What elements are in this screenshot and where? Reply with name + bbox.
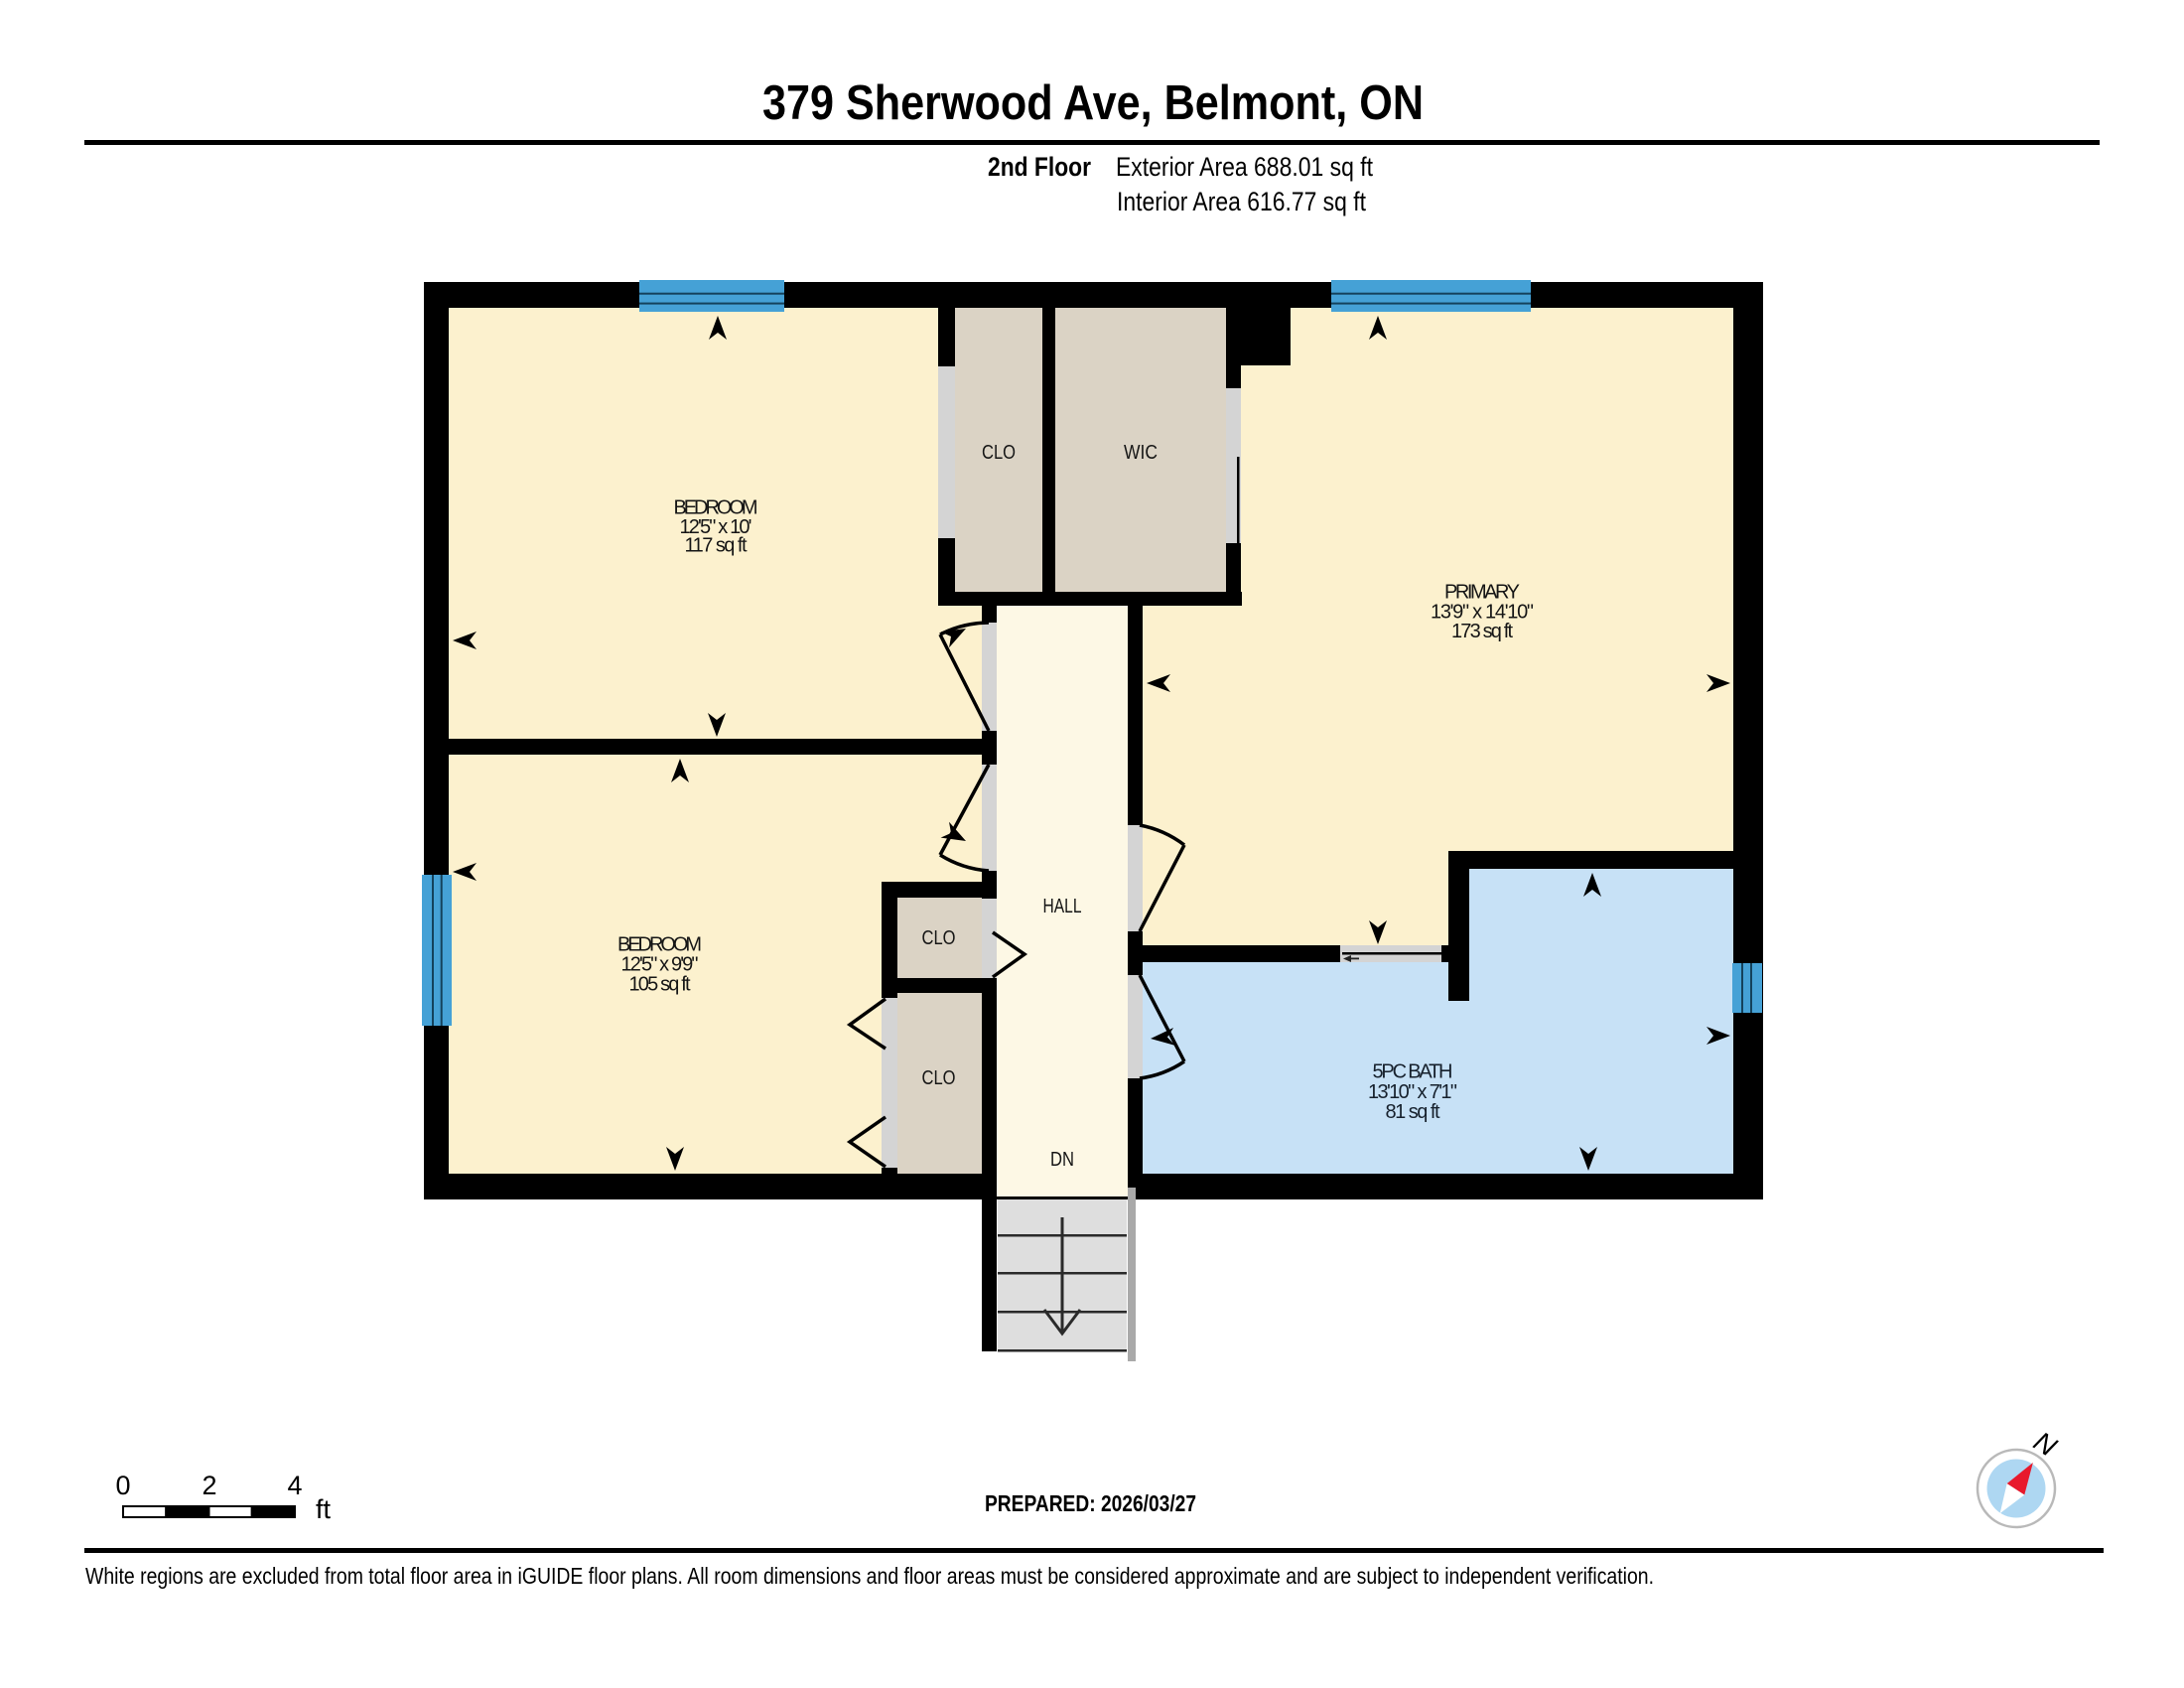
svg-text:117 sq ft: 117 sq ft xyxy=(685,535,748,557)
svg-text:DN: DN xyxy=(1050,1149,1074,1171)
svg-text:Exterior Area 688.01 sq ft: Exterior Area 688.01 sq ft xyxy=(1116,152,1373,182)
svg-text:PREPARED: 2026/03/27: PREPARED: 2026/03/27 xyxy=(985,1490,1196,1516)
svg-text:PRIMARY: PRIMARY xyxy=(1444,582,1520,604)
svg-text:2nd Floor: 2nd Floor xyxy=(988,152,1091,182)
svg-text:12'5" x 9'9": 12'5" x 9'9" xyxy=(621,954,699,976)
svg-text:WIC: WIC xyxy=(1124,442,1158,464)
svg-text:173 sq ft: 173 sq ft xyxy=(1451,621,1513,642)
svg-text:13'10" x 7'1": 13'10" x 7'1" xyxy=(1368,1081,1457,1103)
svg-text:379 Sherwood Ave, Belmont, ON: 379 Sherwood Ave, Belmont, ON xyxy=(762,76,1424,130)
svg-text:0: 0 xyxy=(115,1471,130,1500)
svg-text:CLO: CLO xyxy=(922,1067,956,1089)
svg-text:White regions are excluded fro: White regions are excluded from total fl… xyxy=(85,1563,1654,1589)
svg-text:CLO: CLO xyxy=(922,927,956,949)
svg-text:ft: ft xyxy=(316,1494,332,1524)
svg-text:BEDROOM: BEDROOM xyxy=(617,934,702,956)
svg-text:5PC BATH: 5PC BATH xyxy=(1373,1061,1453,1083)
svg-text:105 sq ft: 105 sq ft xyxy=(629,974,691,996)
svg-text:2: 2 xyxy=(202,1471,216,1500)
svg-text:Interior Area 616.77 sq ft: Interior Area 616.77 sq ft xyxy=(1117,187,1366,216)
svg-text:HALL: HALL xyxy=(1043,896,1082,917)
svg-text:CLO: CLO xyxy=(982,442,1016,464)
svg-text:81 sq ft: 81 sq ft xyxy=(1386,1101,1440,1123)
svg-text:4: 4 xyxy=(287,1471,302,1500)
